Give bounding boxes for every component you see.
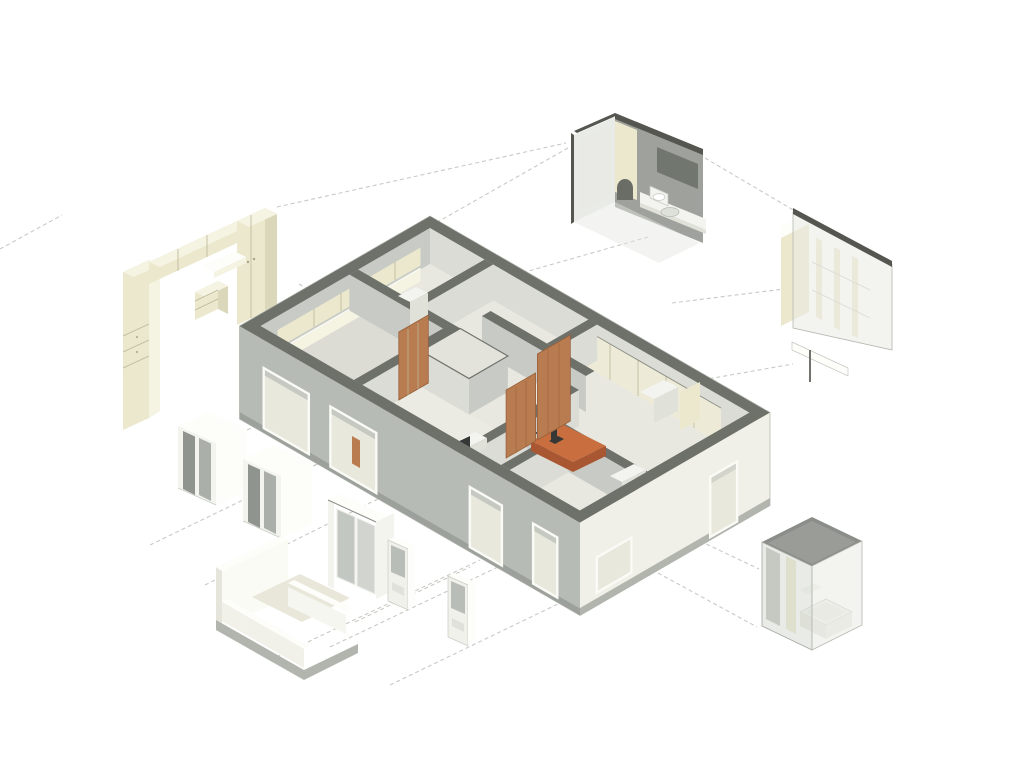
module-sliding-door [328,494,394,599]
module-wardrobe [781,208,892,382]
exploded-axonometric-canvas [0,0,1024,768]
module-window-1 [178,412,247,505]
module-door-1 [388,537,415,610]
module-apartment [240,216,771,616]
module-bathroom-top [571,113,706,263]
module-door-2 [448,573,475,646]
module-window-2 [243,445,312,538]
module-bathroom-tub [762,517,862,650]
diagram-svg [0,0,1024,768]
